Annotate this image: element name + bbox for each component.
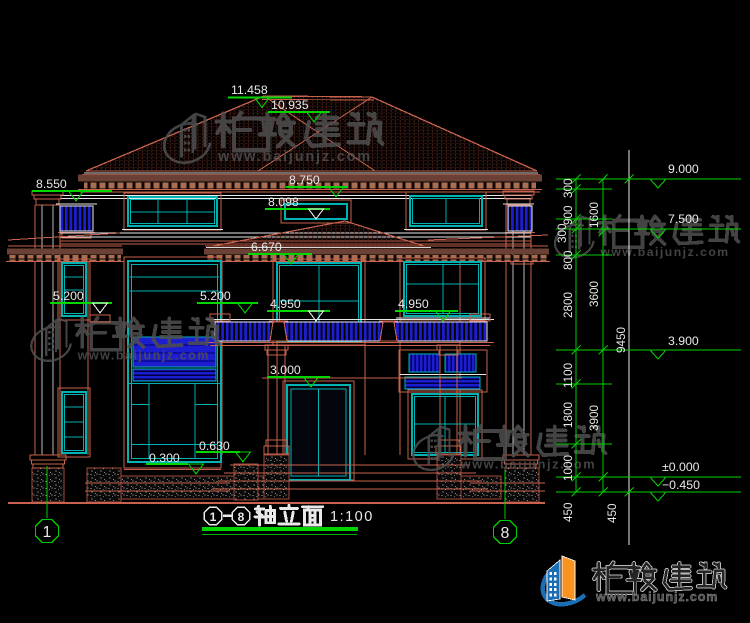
svg-text:3600: 3600 <box>588 280 601 307</box>
svg-text:1: 1 <box>210 510 217 524</box>
svg-text:5.200: 5.200 <box>53 289 84 303</box>
svg-text:1:100: 1:100 <box>330 509 374 525</box>
svg-text:1800: 1800 <box>562 401 575 428</box>
svg-text:3900: 3900 <box>588 404 601 431</box>
svg-text:300: 300 <box>562 178 575 198</box>
svg-text:4.950: 4.950 <box>398 297 429 311</box>
svg-text:www.baijunjz.com: www.baijunjz.com <box>599 245 729 259</box>
svg-text:9450: 9450 <box>615 326 628 353</box>
svg-text:1000: 1000 <box>562 454 575 481</box>
svg-text:1600: 1600 <box>588 201 601 228</box>
svg-text:3.000: 3.000 <box>270 363 301 377</box>
svg-text:450: 450 <box>562 502 575 522</box>
svg-text:450: 450 <box>606 503 619 523</box>
svg-text:8.550: 8.550 <box>36 177 67 191</box>
svg-text:1100: 1100 <box>562 362 575 388</box>
svg-text:0.300: 0.300 <box>149 451 180 465</box>
svg-text:900: 900 <box>562 205 575 225</box>
svg-text:1: 1 <box>43 524 52 541</box>
svg-text:8.750: 8.750 <box>289 173 320 187</box>
svg-text:www.baijunjz.com: www.baijunjz.com <box>595 590 718 604</box>
svg-text:0.630: 0.630 <box>199 439 230 453</box>
svg-text:3.900: 3.900 <box>668 334 699 348</box>
svg-text:9.000: 9.000 <box>668 162 699 176</box>
svg-text:4.950: 4.950 <box>270 297 301 311</box>
svg-text:5.200: 5.200 <box>200 289 231 303</box>
svg-text:±0.000: ±0.000 <box>662 460 700 474</box>
svg-text:8: 8 <box>238 510 245 524</box>
svg-text:2800: 2800 <box>562 291 575 318</box>
svg-text:www.baijunjz.com: www.baijunjz.com <box>217 149 372 165</box>
svg-text:8: 8 <box>501 525 510 542</box>
svg-text:7.500: 7.500 <box>668 212 699 226</box>
svg-text:11.458: 11.458 <box>231 83 268 97</box>
svg-text:−0.450: −0.450 <box>662 478 700 492</box>
svg-text:6.670: 6.670 <box>251 240 282 254</box>
svg-text:800: 800 <box>562 250 575 270</box>
svg-text:8.098: 8.098 <box>268 195 299 209</box>
svg-text:300: 300 <box>556 223 569 243</box>
svg-text:10.935: 10.935 <box>271 98 309 112</box>
svg-text:www.baijunjz.com: www.baijunjz.com <box>77 348 210 362</box>
